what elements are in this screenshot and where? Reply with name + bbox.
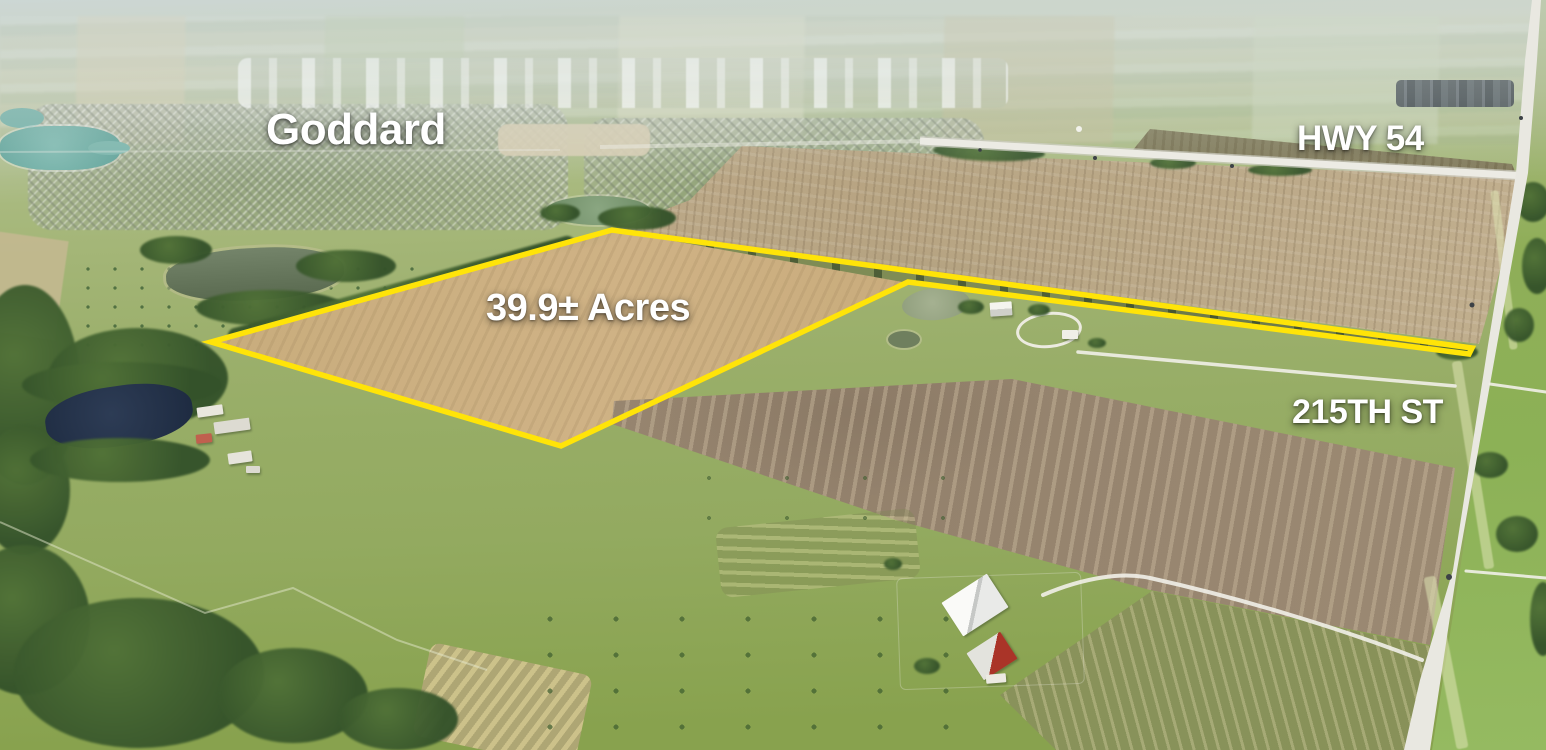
farm-pond-small <box>888 331 920 348</box>
farm-shed <box>986 673 1007 684</box>
tree-cluster <box>1088 338 1106 348</box>
street-label: 215TH ST <box>1292 395 1443 429</box>
acreage-label: 39.9± Acres <box>486 289 690 327</box>
tree-cluster <box>1522 238 1546 294</box>
tree-cluster <box>296 250 396 282</box>
city-label: Goddard <box>266 108 446 152</box>
tree-cluster <box>958 300 984 314</box>
farm-shed <box>1062 330 1078 339</box>
aerial-photo: Goddard HWY 54 39.9± Acres 215TH ST <box>0 0 1546 750</box>
tree-cluster <box>1496 516 1538 552</box>
farm-building-red-roof <box>196 433 213 444</box>
tree-cluster <box>338 688 458 750</box>
tree-cluster <box>1436 344 1478 360</box>
tree-cluster <box>1028 304 1050 316</box>
tree-cluster <box>1516 182 1546 222</box>
tree-cluster <box>140 236 212 264</box>
tree-cluster <box>1472 452 1508 478</box>
tree-cluster <box>1504 308 1534 342</box>
farm-building <box>246 466 260 473</box>
farm-house <box>990 301 1013 317</box>
tree-cluster <box>598 206 676 230</box>
highway-label: HWY 54 <box>1297 121 1424 156</box>
tree-speckle <box>700 470 1000 540</box>
tree-cluster <box>914 658 940 674</box>
tree-cluster <box>30 438 210 482</box>
tree-cluster <box>884 558 902 570</box>
tree-cluster <box>540 204 580 222</box>
